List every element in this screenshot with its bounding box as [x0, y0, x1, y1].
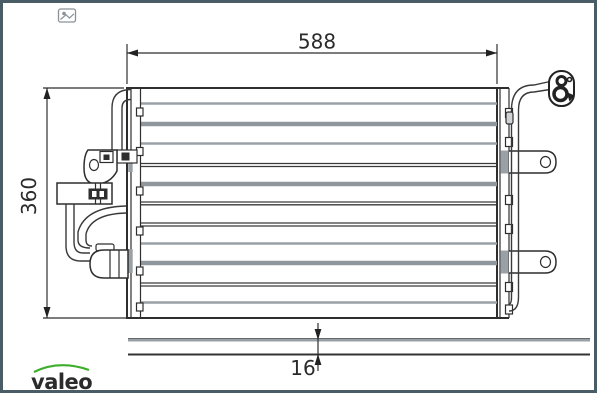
core-tube-rows	[141, 104, 497, 303]
right-lower-bracket	[509, 251, 556, 273]
left-plate-notches	[137, 108, 144, 311]
dimension-width: 588	[127, 30, 497, 85]
connection-flange	[549, 71, 575, 106]
condenser-technical-drawing: 588 360 16 valeo	[0, 0, 600, 400]
valeo-logo-text: valeo	[31, 370, 92, 394]
valeo-logo: valeo	[31, 365, 92, 394]
flange-port-small	[557, 77, 566, 86]
left-mounting-bracket	[84, 150, 117, 184]
outlet-fitting	[90, 244, 128, 278]
flange-port-large	[554, 88, 567, 101]
bottom-edge-view	[128, 338, 590, 354]
dimension-depth: 16	[290, 323, 321, 380]
bolt-head	[89, 189, 108, 200]
image-marker-icon	[59, 9, 76, 22]
right-upper-bracket	[509, 151, 556, 173]
bracket-hole	[541, 257, 551, 268]
dim-height-label: 360	[17, 177, 41, 215]
left-mounting-block	[57, 183, 112, 204]
left-side-plate	[128, 88, 143, 318]
pipe-clip	[506, 112, 513, 124]
condenser-core	[127, 88, 513, 318]
bracket-hole	[541, 157, 551, 168]
drawing-canvas: 588 360 16 valeo	[0, 0, 600, 400]
pipe-clamp	[117, 150, 137, 163]
right-pipe-assembly	[506, 71, 575, 311]
dim-width-label: 588	[298, 30, 336, 54]
left-pipe-assembly	[57, 90, 137, 279]
dim-depth-label: 16	[290, 356, 315, 380]
bracket-slot-hole	[90, 160, 99, 171]
